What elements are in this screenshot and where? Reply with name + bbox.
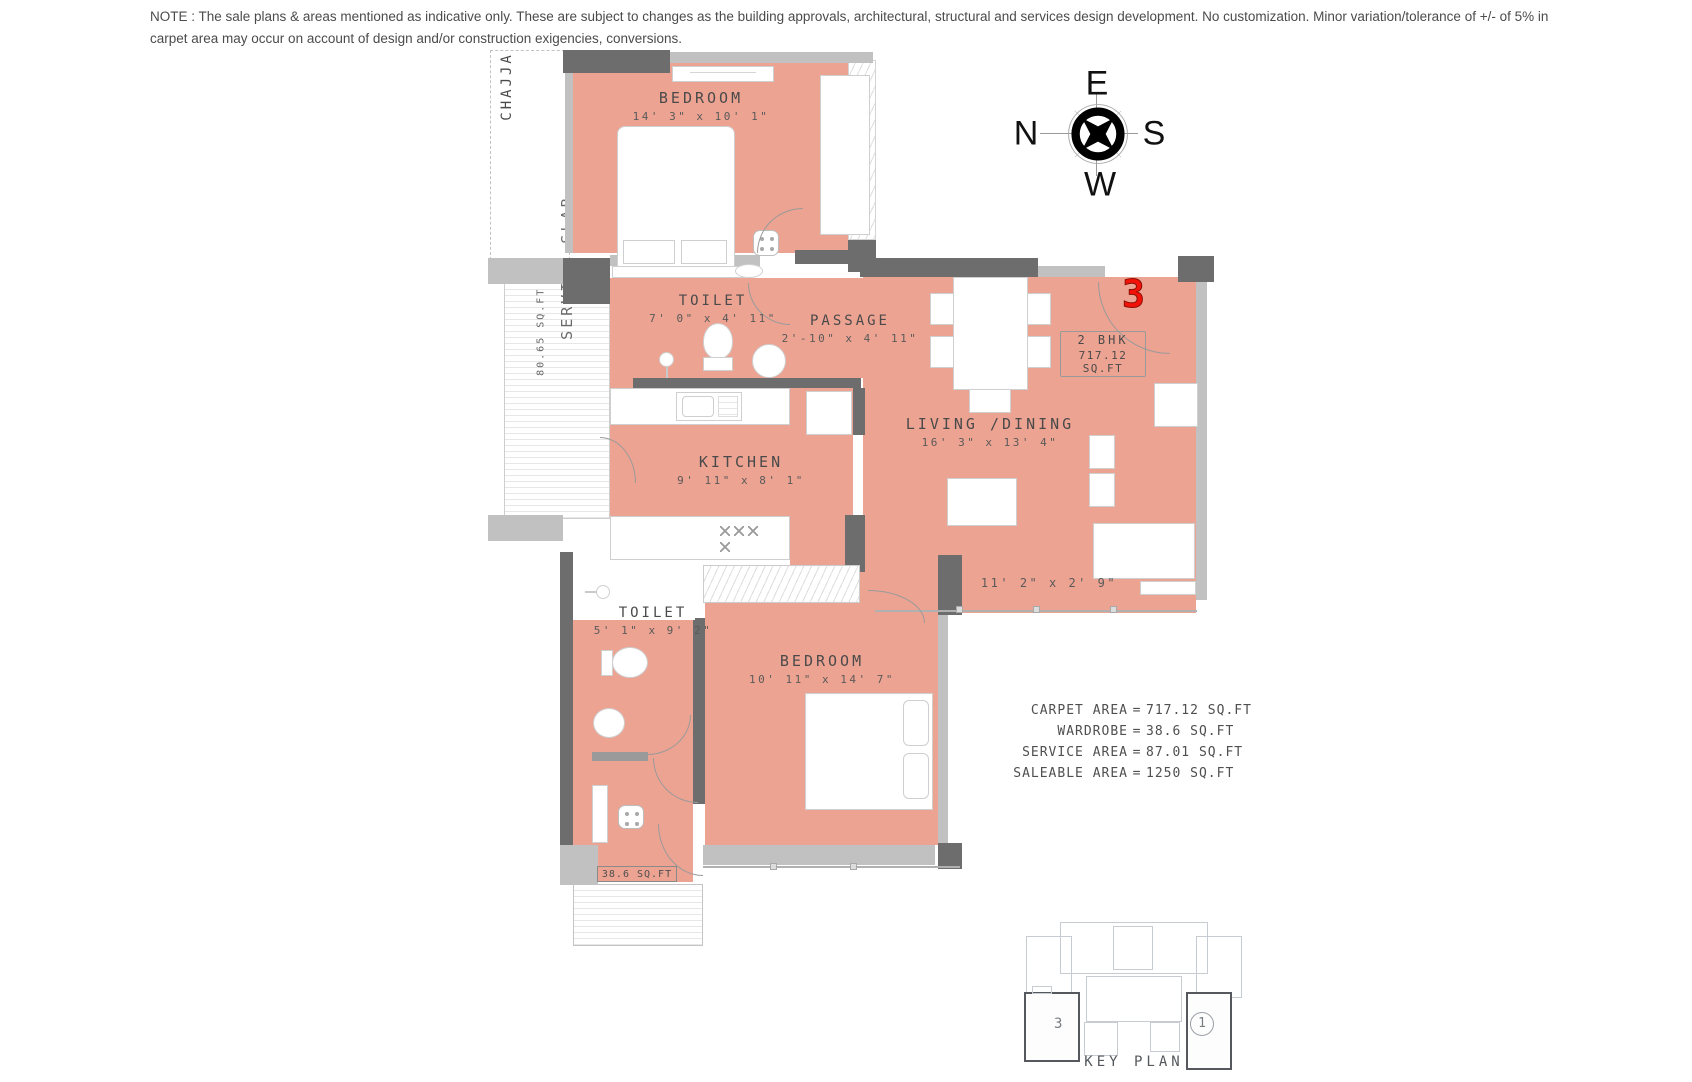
living-label: LIVING /DINING 16' 3" x 13' 4" bbox=[906, 415, 1074, 449]
wall bbox=[488, 258, 563, 284]
dresser-icon bbox=[672, 66, 774, 82]
equals-sign: = bbox=[1128, 742, 1146, 763]
toilet-tank bbox=[703, 357, 733, 371]
area-label: CARPET AREA bbox=[960, 700, 1128, 721]
compass-north-label: N bbox=[1014, 115, 1039, 154]
wall bbox=[592, 752, 648, 761]
key-plan-unit-1-number: 1 bbox=[1190, 1012, 1214, 1036]
wall bbox=[563, 258, 610, 304]
table-row: WARDROBE = 38.6 SQ.FT bbox=[960, 721, 1290, 742]
floor-plan-page: NOTE : The sale plans & areas mentioned … bbox=[0, 0, 1692, 1082]
wall bbox=[1178, 256, 1214, 282]
corridor-floor bbox=[790, 516, 853, 565]
wall bbox=[633, 378, 861, 388]
disclaimer-note: NOTE : The sale plans & areas mentioned … bbox=[150, 6, 1574, 49]
wall-window bbox=[1196, 282, 1207, 600]
vanity-counter bbox=[612, 266, 745, 278]
wardrobe-area-label: 38.6 SQ.FT bbox=[597, 866, 677, 882]
chajja-bottom-area bbox=[573, 884, 703, 946]
bedroom1-label: BEDROOM 14' 3" x 10' 1" bbox=[633, 89, 770, 123]
dining-table-icon bbox=[953, 277, 1028, 390]
key-plan-unit-3-number: 3 bbox=[1054, 1016, 1062, 1032]
fridge-icon bbox=[806, 391, 852, 435]
table-row: SERVICE AREA = 87.01 SQ.FT bbox=[960, 742, 1290, 763]
balcony-post bbox=[1110, 606, 1117, 613]
compass-south-label: S bbox=[1143, 115, 1166, 154]
wall bbox=[560, 845, 598, 885]
dining-chair-icon bbox=[1027, 336, 1051, 368]
key-plan-block bbox=[1113, 926, 1153, 970]
washbasin-icon bbox=[593, 708, 625, 738]
balcony-post bbox=[956, 606, 963, 613]
room-name: LIVING /DINING bbox=[906, 415, 1074, 433]
compass-east-label: E bbox=[1086, 65, 1109, 104]
service-slab-area bbox=[504, 283, 610, 519]
wall bbox=[560, 552, 573, 848]
table-row: SALEABLE AREA = 1250 SQ.FT bbox=[960, 763, 1290, 784]
pedestal-sink-icon bbox=[752, 344, 786, 378]
cabinet-icon bbox=[1154, 383, 1198, 427]
service-slab-area-label: 80.65 SQ.FT bbox=[536, 288, 547, 376]
equals-sign: = bbox=[1128, 763, 1146, 784]
compass-west-label: W bbox=[1084, 166, 1116, 205]
unit-type: 2 BHK bbox=[1061, 333, 1145, 347]
stool-icon bbox=[618, 805, 644, 829]
room-name: KITCHEN bbox=[677, 453, 805, 471]
wall bbox=[563, 50, 670, 73]
toilet2-label: TOILET 5' 1" x 9' 2" bbox=[594, 605, 713, 637]
wall bbox=[703, 845, 935, 865]
pillow-icon bbox=[903, 753, 929, 799]
equals-sign: = bbox=[1128, 700, 1146, 721]
room-dims: 10' 11" x 14' 7" bbox=[749, 673, 895, 686]
tv-unit-icon bbox=[947, 478, 1017, 526]
compass-icon bbox=[1066, 102, 1130, 166]
wall bbox=[565, 73, 573, 253]
balcony-dims-label: 11' 2" x 2' 9" bbox=[981, 576, 1117, 590]
dining-chair-icon bbox=[969, 389, 1011, 413]
toilet-wc-icon bbox=[612, 647, 648, 678]
sink-drainboard bbox=[718, 396, 738, 417]
wall-window bbox=[1038, 266, 1105, 277]
wall bbox=[845, 515, 865, 572]
room-dims: 2'-10" x 4' 11" bbox=[782, 332, 919, 345]
equals-sign: = bbox=[1128, 721, 1146, 742]
area-value: 1250 SQ.FT bbox=[1146, 763, 1286, 784]
room-dims: 5' 1" x 9' 2" bbox=[594, 624, 713, 637]
faucet-stem bbox=[585, 591, 597, 593]
balcony-post bbox=[1033, 606, 1040, 613]
washbasin-icon bbox=[735, 264, 763, 278]
wall bbox=[795, 250, 852, 264]
key-plan: 3 1 KEY PLAN bbox=[1018, 916, 1250, 1082]
area-label: SERVICE AREA bbox=[960, 742, 1128, 763]
key-plan-block bbox=[1086, 976, 1182, 1022]
armchair-icon bbox=[1089, 435, 1115, 469]
key-plan-title: KEY PLAN bbox=[1084, 1054, 1183, 1070]
room-name: PASSAGE bbox=[782, 313, 919, 329]
room-dims: 16' 3" x 13' 4" bbox=[906, 436, 1074, 449]
sink-bowl bbox=[682, 396, 714, 417]
room-dims: 14' 3" x 10' 1" bbox=[633, 110, 770, 123]
wardrobe-icon bbox=[703, 565, 860, 603]
room-dims: 9' 11" x 8' 1" bbox=[677, 474, 805, 487]
armchair-icon bbox=[1089, 473, 1115, 507]
pillow-icon bbox=[903, 700, 929, 746]
chajja-label: CHAJJA bbox=[499, 52, 515, 121]
room-name: BEDROOM bbox=[633, 89, 770, 107]
balcony-post bbox=[850, 863, 857, 870]
passage-label: PASSAGE 2'-10" x 4' 11" bbox=[782, 313, 919, 345]
faucet-icon bbox=[596, 585, 610, 599]
room-name: TOILET bbox=[649, 293, 777, 309]
dresser-handle bbox=[690, 72, 756, 73]
area-label: SALEABLE AREA bbox=[960, 763, 1128, 784]
area-value: 717.12 SQ.FT bbox=[1146, 700, 1286, 721]
key-plan-block bbox=[1150, 1022, 1180, 1052]
unit-type-badge: 2 BHK 717.12 SQ.FT bbox=[1060, 331, 1146, 377]
mirror-shelf bbox=[592, 785, 608, 843]
light-fixture-icon bbox=[659, 352, 674, 367]
room-name: TOILET bbox=[594, 605, 713, 621]
kitchen-label: KITCHEN 9' 11" x 8' 1" bbox=[677, 453, 805, 487]
bedroom2-label: BEDROOM 10' 11" x 14' 7" bbox=[749, 652, 895, 686]
table-row: CARPET AREA = 717.12 SQ.FT bbox=[960, 700, 1290, 721]
wall bbox=[860, 258, 1038, 277]
area-label: WARDROBE bbox=[960, 721, 1128, 742]
key-plan-block bbox=[1196, 936, 1242, 998]
sofa-icon bbox=[1093, 523, 1195, 579]
area-statement-table: CARPET AREA = 717.12 SQ.FT WARDROBE = 38… bbox=[960, 700, 1290, 784]
sofa-extension bbox=[1140, 581, 1196, 595]
dining-chair-icon bbox=[930, 293, 954, 325]
key-plan-notch bbox=[1032, 986, 1052, 994]
toilet-wc-icon bbox=[703, 323, 733, 359]
room-name: BEDROOM bbox=[749, 652, 895, 670]
key-plan-unit-3 bbox=[1024, 992, 1080, 1062]
fixture-stem bbox=[666, 367, 668, 378]
dining-chair-icon bbox=[930, 336, 954, 368]
area-value: 87.01 SQ.FT bbox=[1146, 742, 1286, 763]
key-plan-block bbox=[1084, 1022, 1118, 1056]
wardrobe-icon bbox=[820, 75, 870, 235]
area-value: 38.6 SQ.FT bbox=[1146, 721, 1286, 742]
unit-number: 3 bbox=[1122, 272, 1145, 316]
pillow-icon bbox=[623, 240, 675, 264]
wall bbox=[853, 388, 865, 435]
room-dims: 7' 0" x 4' 11" bbox=[649, 312, 777, 325]
wall bbox=[670, 52, 873, 63]
wall-window bbox=[938, 615, 948, 843]
wall bbox=[488, 515, 563, 541]
dining-chair-icon bbox=[1027, 293, 1051, 325]
balcony-edge bbox=[703, 866, 960, 868]
unit-area: 717.12 SQ.FT bbox=[1061, 349, 1145, 375]
balcony-post bbox=[770, 863, 777, 870]
hob-icon bbox=[720, 526, 768, 552]
toilet1-label: TOILET 7' 0" x 4' 11" bbox=[649, 293, 777, 325]
pillow-icon bbox=[681, 240, 727, 264]
